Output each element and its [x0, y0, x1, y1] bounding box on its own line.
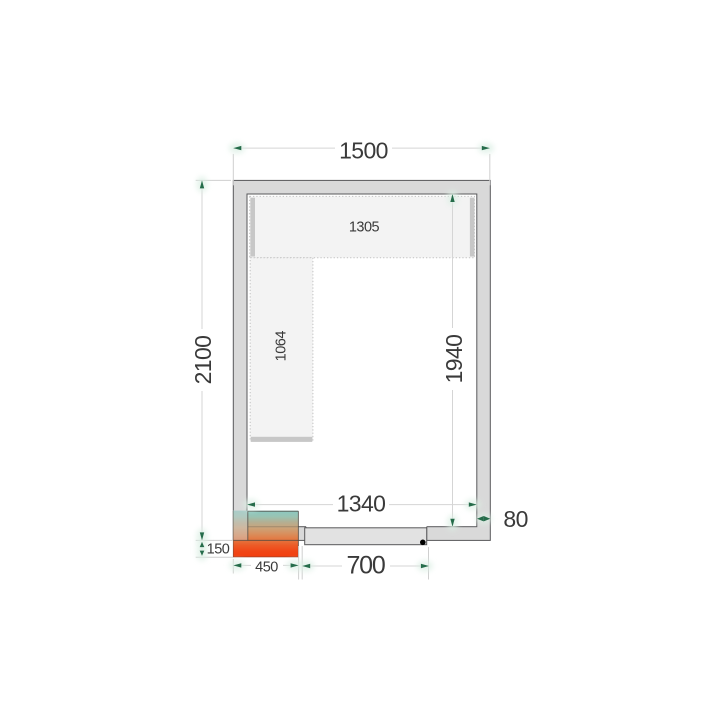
svg-text:1500: 1500	[339, 137, 388, 163]
svg-text:1305: 1305	[349, 220, 380, 236]
svg-text:1064: 1064	[274, 331, 290, 362]
svg-text:1940: 1940	[441, 335, 467, 384]
svg-text:450: 450	[255, 560, 278, 576]
svg-text:700: 700	[346, 551, 384, 579]
svg-text:150: 150	[207, 542, 230, 558]
svg-text:80: 80	[503, 506, 527, 532]
svg-text:2100: 2100	[190, 336, 216, 385]
svg-text:1340: 1340	[337, 491, 386, 517]
